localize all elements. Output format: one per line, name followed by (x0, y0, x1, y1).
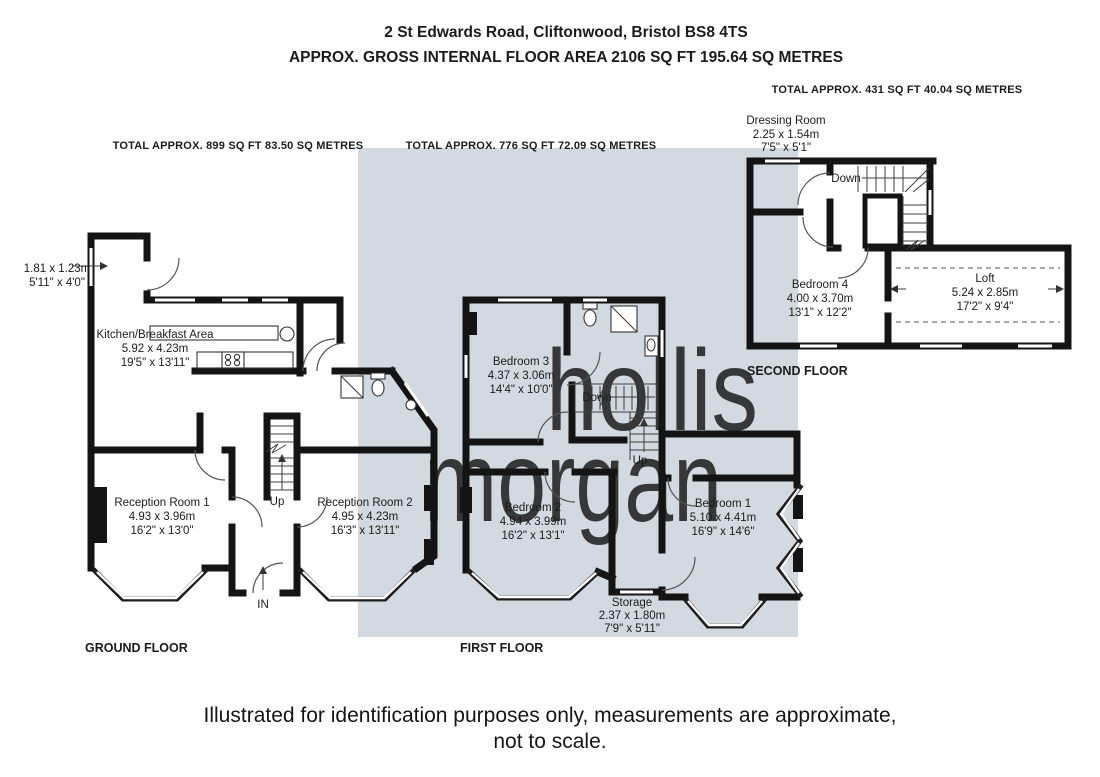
kitchen-name: Kitchen/Breakfast Area (97, 329, 215, 341)
stairs-down-label: Down (831, 173, 860, 185)
footer-disclaimer: Illustrated for identification purposes … (204, 704, 897, 753)
dressing-door-arc (798, 173, 830, 205)
basin (406, 400, 416, 410)
kitchen-door-arc (303, 339, 335, 371)
stairs-down-label: Down (582, 392, 611, 404)
storage-metric: 2.37 x 1.80m (599, 610, 665, 622)
second-floor-title: SECOND FLOOR (747, 364, 848, 378)
loft-name: Loft (975, 273, 995, 285)
bedroom1-name: Bedroom 1 (695, 498, 751, 510)
chimney-breast (460, 487, 472, 513)
reception2-imperial: 16'3" x 13'11" (331, 525, 400, 537)
floorplan-canvas: 2 St Edwards Road, Cliftonwood, Bristol … (0, 0, 1100, 777)
kitchen-imperial: 19'5" x 13'11" (121, 357, 190, 369)
kitchen-metric: 5.92 x 4.23m (122, 343, 188, 355)
porch-arrow (100, 262, 108, 270)
porch-door-arc (147, 258, 179, 290)
reception1-metric: 4.93 x 3.96m (129, 511, 195, 523)
hob (222, 352, 244, 368)
right-arrow (1056, 285, 1064, 293)
bedroom2-imperial: 16'2" x 13'1" (501, 530, 564, 542)
loft-imperial: 17'2" x 9'4" (957, 301, 1014, 313)
loft-metric: 5.24 x 2.85m (952, 287, 1018, 299)
bedroom3-name: Bedroom 3 (493, 356, 549, 368)
ground-floor-annotations: 1.81 x 1.23m 5'11" x 4'0" Kitchen/Breakf… (24, 262, 413, 611)
chimney-breast (793, 495, 803, 519)
stairs-up-label: Up (270, 496, 285, 508)
floorplan-page: 2 St Edwards Road, Cliftonwood, Bristol … (0, 0, 1100, 777)
disclaimer-line1: Illustrated for identification purposes … (204, 704, 897, 727)
disclaimer-line2: not to scale. (493, 730, 606, 753)
chimney-breast (424, 539, 434, 565)
porch-dim-metric: 1.81 x 1.23m (24, 263, 90, 275)
dressing-imperial: 7'5" x 5'1" (761, 142, 811, 154)
first-floor-title: FIRST FLOOR (460, 641, 543, 655)
sink (280, 327, 294, 341)
ground-floor-doors (147, 258, 345, 593)
toilet (584, 310, 596, 326)
chimney-breast (424, 485, 434, 511)
second-total-label: TOTAL APPROX. 431 SQ FT 40.04 SQ METRES (772, 84, 1023, 96)
dressing-name: Dressing Room (746, 115, 825, 127)
reception2-metric: 4.95 x 4.23m (332, 511, 398, 523)
entrance-label: IN (257, 599, 269, 611)
reception2-name: Reception Room 2 (317, 497, 412, 509)
bedroom1-imperial: 16'9" x 14'6" (691, 526, 754, 538)
toilet-cistern (371, 373, 385, 379)
entrance-arrow (259, 566, 267, 574)
stairs-up-label: Up (633, 455, 648, 467)
bedroom4-imperial: 13'1" x 12'2" (788, 307, 851, 319)
first-total-label: TOTAL APPROX. 776 SQ FT 72.09 SQ METRES (406, 140, 657, 152)
reception1-door-arc (195, 450, 225, 480)
kitchen-counter (197, 352, 293, 368)
bedroom4-metric: 4.00 x 3.70m (787, 293, 853, 305)
stair-void (865, 196, 900, 246)
gross-area-title: APPROX. GROSS INTERNAL FLOOR AREA 2106 S… (289, 49, 843, 66)
storage-name: Storage (612, 597, 652, 609)
chimney-breast (465, 312, 477, 335)
ground-floor-title: GROUND FLOOR (85, 641, 188, 655)
bedroom3-imperial: 14'4" x 10'0" (489, 384, 552, 396)
chimney-breast (94, 487, 107, 543)
ground-total-label: TOTAL APPROX. 899 SQ FT 83.50 SQ METRES (113, 140, 364, 152)
bedroom1-metric: 5.10 x 4.41m (690, 512, 756, 524)
bedroom4-name: Bedroom 4 (792, 279, 849, 291)
toilet (372, 380, 384, 396)
bedroom3-metric: 4.37 x 3.06m (488, 370, 554, 382)
reception1-imperial: 16'2" x 13'0" (130, 525, 193, 537)
bedroom4-door-arc (838, 248, 868, 278)
bedroom2-metric: 4.94 x 3.99m (500, 516, 566, 528)
porch-dim-imperial: 5'11" x 4'0" (29, 277, 85, 289)
dressing-metric: 2.25 x 1.54m (753, 129, 819, 141)
reception1-name: Reception Room 1 (114, 497, 209, 509)
hall-door-arc (232, 497, 262, 527)
storage-imperial: 7'9" x 5'11" (604, 623, 660, 635)
address-title: 2 St Edwards Road, Cliftonwood, Bristol … (384, 24, 747, 41)
toilet-cistern (583, 303, 597, 309)
header: 2 St Edwards Road, Cliftonwood, Bristol … (289, 24, 843, 66)
entrance-door-arc (253, 563, 283, 593)
bedroom2-name: Bedroom 2 (505, 502, 561, 514)
wc-door-arc (317, 343, 345, 371)
